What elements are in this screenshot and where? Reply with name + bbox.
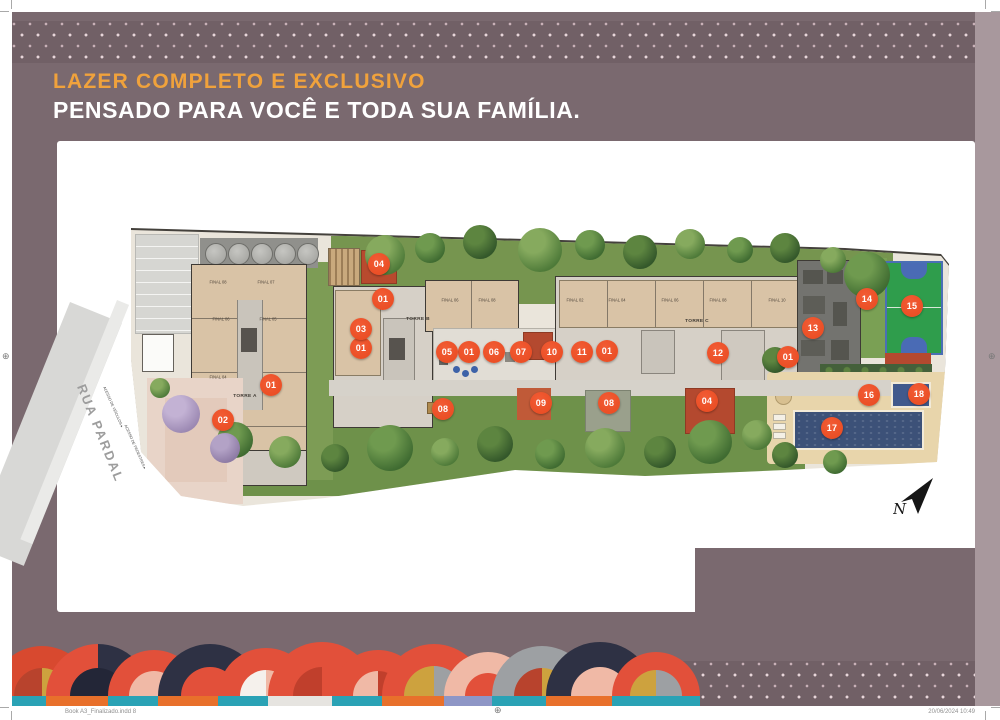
- north-arrow-icon: N: [893, 476, 937, 518]
- torre-a-stair: [241, 328, 257, 352]
- patio-terracotta-09: [517, 388, 551, 420]
- crop-mark: [0, 11, 9, 12]
- crop-mark: [11, 0, 12, 9]
- torre-c-core: [641, 330, 675, 374]
- water-tank: [228, 243, 250, 265]
- dotted-pattern-band-top: [12, 21, 975, 63]
- water-tank: [274, 243, 296, 265]
- lawn-right: [861, 258, 887, 358]
- roof-equipment: [803, 296, 825, 314]
- crop-mark: [11, 711, 12, 720]
- torre-b-units-left: [335, 290, 381, 376]
- page-title: LAZER COMPLETO E EXCLUSIVO: [53, 70, 426, 94]
- game-table: [471, 366, 478, 373]
- game-table: [453, 366, 460, 373]
- torre-b-stair: [389, 338, 405, 360]
- page-subtitle: PENSADO PARA VOCÊ E TODA SUA FAMÍLIA.: [53, 97, 580, 124]
- footer-filename: Book A3_Finalizado.indd 8: [65, 709, 136, 715]
- registration-mark: ⊕: [988, 352, 996, 361]
- footer-timestamp: 20/06/2024 10:49: [880, 709, 975, 715]
- crop-mark: [991, 707, 1000, 708]
- grill-station: [439, 350, 448, 365]
- registration-mark: ⊕: [494, 706, 502, 715]
- water-tank: [205, 243, 227, 265]
- water-tank: [251, 243, 273, 265]
- pergola-mid: [523, 332, 553, 360]
- kids-pool: [891, 382, 931, 408]
- torre-c-core: [721, 330, 765, 384]
- parking-area: [135, 234, 199, 334]
- court-key-bottom: [901, 337, 927, 353]
- arc-baseline-segment: [612, 696, 700, 706]
- lounge-table: [505, 352, 515, 362]
- game-table: [462, 370, 469, 377]
- torre-c-units-top: [559, 280, 803, 328]
- roof-equipment: [801, 340, 825, 356]
- patio-play-area: [585, 390, 631, 432]
- water-tank: [297, 243, 319, 265]
- roof-equipment: [831, 340, 849, 360]
- lounger: [773, 414, 786, 421]
- swimming-pool: [793, 410, 924, 450]
- entry-path: [165, 398, 227, 482]
- lounger: [773, 432, 786, 439]
- patio-terracotta-04: [685, 388, 735, 434]
- crop-mark: [985, 711, 986, 720]
- lounger: [773, 423, 786, 430]
- roof-equipment: [827, 270, 843, 284]
- court-center-circle: [907, 301, 922, 316]
- crop-mark: [0, 707, 9, 708]
- north-arrow: N: [893, 476, 937, 518]
- patio-terracotta-top: [361, 250, 397, 284]
- service-building-small: [142, 334, 174, 372]
- registration-mark: ⊕: [2, 352, 10, 361]
- decorative-arc-band: [12, 640, 702, 706]
- sports-court: [885, 261, 943, 355]
- courtyard-green: [307, 262, 333, 480]
- torre-b-units-top: [425, 280, 519, 332]
- court-key-top: [901, 263, 927, 279]
- crop-mark: [985, 0, 986, 9]
- roof-equipment: [803, 270, 823, 284]
- bbq-table: [427, 402, 445, 414]
- north-letter: N: [893, 500, 907, 518]
- pergola-deck: [328, 248, 360, 286]
- roof-equipment: [833, 302, 847, 326]
- crop-mark: [991, 11, 1000, 12]
- page-background-step: [695, 548, 975, 614]
